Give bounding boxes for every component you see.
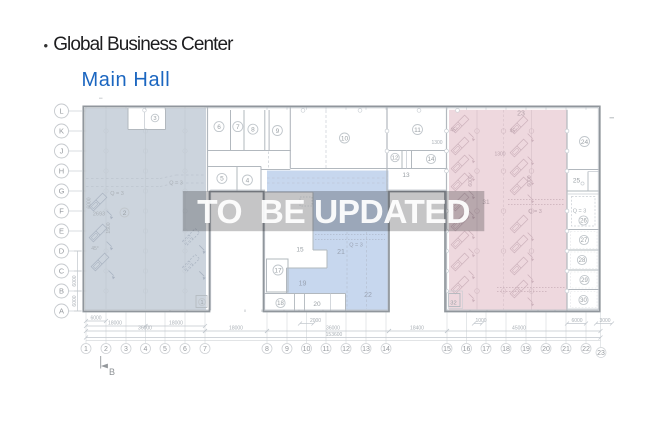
- svg-text:21: 21: [337, 249, 345, 256]
- svg-text:17: 17: [274, 267, 282, 274]
- svg-text:2: 2: [123, 210, 127, 217]
- svg-text:13: 13: [402, 172, 410, 179]
- svg-text:25: 25: [573, 178, 581, 185]
- svg-text:18400: 18400: [410, 325, 424, 331]
- svg-text:14: 14: [382, 346, 390, 353]
- svg-text:J: J: [60, 147, 64, 156]
- svg-text:8: 8: [251, 127, 255, 134]
- svg-text:C: C: [59, 267, 65, 276]
- svg-text:7: 7: [236, 124, 240, 131]
- svg-text:3: 3: [153, 116, 156, 122]
- svg-text:13: 13: [362, 346, 370, 353]
- svg-text:Q = 3: Q = 3: [349, 243, 363, 249]
- svg-text:20: 20: [313, 301, 321, 308]
- svg-text:23: 23: [517, 111, 525, 118]
- svg-text:45°: 45°: [510, 129, 518, 135]
- svg-text:L: L: [59, 107, 63, 116]
- svg-text:4: 4: [246, 177, 250, 184]
- svg-text:B: B: [59, 287, 64, 296]
- svg-text:30: 30: [580, 298, 587, 304]
- svg-text:G: G: [59, 187, 65, 196]
- svg-text:3000: 3000: [599, 318, 610, 324]
- svg-text:18000: 18000: [108, 320, 122, 326]
- svg-text:9: 9: [285, 346, 289, 353]
- svg-text:1500: 1500: [106, 222, 112, 233]
- svg-text:2693: 2693: [93, 212, 105, 218]
- svg-text:11: 11: [414, 127, 421, 134]
- svg-text:Q = 3: Q = 3: [110, 191, 124, 197]
- svg-text:6: 6: [183, 346, 187, 353]
- svg-text:18: 18: [277, 301, 284, 307]
- svg-text:TO BE UPDATED: TO BE UPDATED: [197, 194, 470, 231]
- svg-text:18000: 18000: [229, 325, 243, 331]
- svg-text:1000: 1000: [475, 318, 486, 324]
- svg-text:3: 3: [124, 346, 128, 353]
- svg-text:45°: 45°: [450, 128, 458, 134]
- svg-text:45°: 45°: [91, 246, 99, 252]
- svg-text:1: 1: [200, 300, 203, 306]
- svg-text:17: 17: [482, 346, 490, 353]
- svg-text:22: 22: [582, 346, 590, 353]
- svg-text:14: 14: [428, 156, 435, 163]
- svg-text:45000: 45000: [512, 325, 526, 331]
- svg-text:6000: 6000: [87, 197, 93, 208]
- svg-text:11: 11: [322, 346, 329, 353]
- svg-text:5: 5: [163, 346, 167, 353]
- svg-text:24: 24: [581, 139, 589, 146]
- svg-text:5: 5: [220, 176, 224, 183]
- svg-text:12: 12: [392, 156, 398, 162]
- svg-text:36000: 36000: [138, 325, 152, 331]
- svg-text:1300: 1300: [494, 152, 505, 158]
- svg-text:19: 19: [299, 281, 307, 288]
- svg-text:29: 29: [581, 278, 588, 284]
- svg-text:B: B: [109, 367, 115, 377]
- svg-text:6000: 6000: [571, 318, 582, 324]
- svg-text:6000: 6000: [527, 175, 533, 186]
- svg-text:2: 2: [104, 346, 108, 353]
- svg-text:18: 18: [502, 346, 510, 353]
- svg-text:12: 12: [342, 346, 350, 353]
- svg-text:15: 15: [443, 346, 451, 353]
- svg-text:28: 28: [579, 258, 586, 264]
- svg-text:6000: 6000: [468, 175, 474, 186]
- svg-text:26: 26: [580, 219, 587, 225]
- svg-text:19: 19: [522, 346, 530, 353]
- svg-text:21: 21: [562, 346, 570, 353]
- svg-text:23: 23: [597, 350, 605, 357]
- svg-text:16: 16: [463, 346, 471, 353]
- svg-text:8: 8: [265, 346, 269, 353]
- svg-text:32: 32: [450, 301, 456, 307]
- svg-text:36000: 36000: [326, 325, 340, 331]
- svg-text:20: 20: [542, 346, 550, 353]
- svg-text:E: E: [59, 227, 64, 236]
- svg-text:6: 6: [217, 124, 221, 131]
- svg-text:6000: 6000: [72, 275, 78, 286]
- svg-text:15: 15: [296, 247, 304, 254]
- svg-text:Q = 3: Q = 3: [573, 209, 587, 215]
- svg-text:F: F: [59, 207, 64, 216]
- svg-text:7: 7: [203, 346, 207, 353]
- svg-text:4: 4: [144, 346, 148, 353]
- svg-text:10: 10: [303, 346, 311, 353]
- svg-text:9: 9: [276, 128, 280, 135]
- svg-text:D: D: [59, 247, 65, 256]
- svg-text:K: K: [59, 127, 64, 136]
- svg-text:6000: 6000: [90, 316, 101, 322]
- svg-text:1: 1: [84, 346, 88, 353]
- svg-text:Q = 3: Q = 3: [169, 181, 183, 187]
- svg-text:H: H: [59, 167, 64, 176]
- svg-text:18000: 18000: [169, 320, 183, 326]
- svg-text:27: 27: [581, 238, 588, 244]
- svg-text:6000: 6000: [72, 295, 78, 306]
- svg-text:153600: 153600: [326, 332, 343, 338]
- svg-text:1300: 1300: [431, 140, 442, 146]
- svg-text:Q = 3: Q = 3: [528, 209, 542, 215]
- svg-text:10: 10: [341, 135, 349, 142]
- svg-text:A: A: [59, 307, 64, 316]
- svg-text:2000: 2000: [310, 318, 321, 324]
- svg-text:22: 22: [364, 292, 372, 299]
